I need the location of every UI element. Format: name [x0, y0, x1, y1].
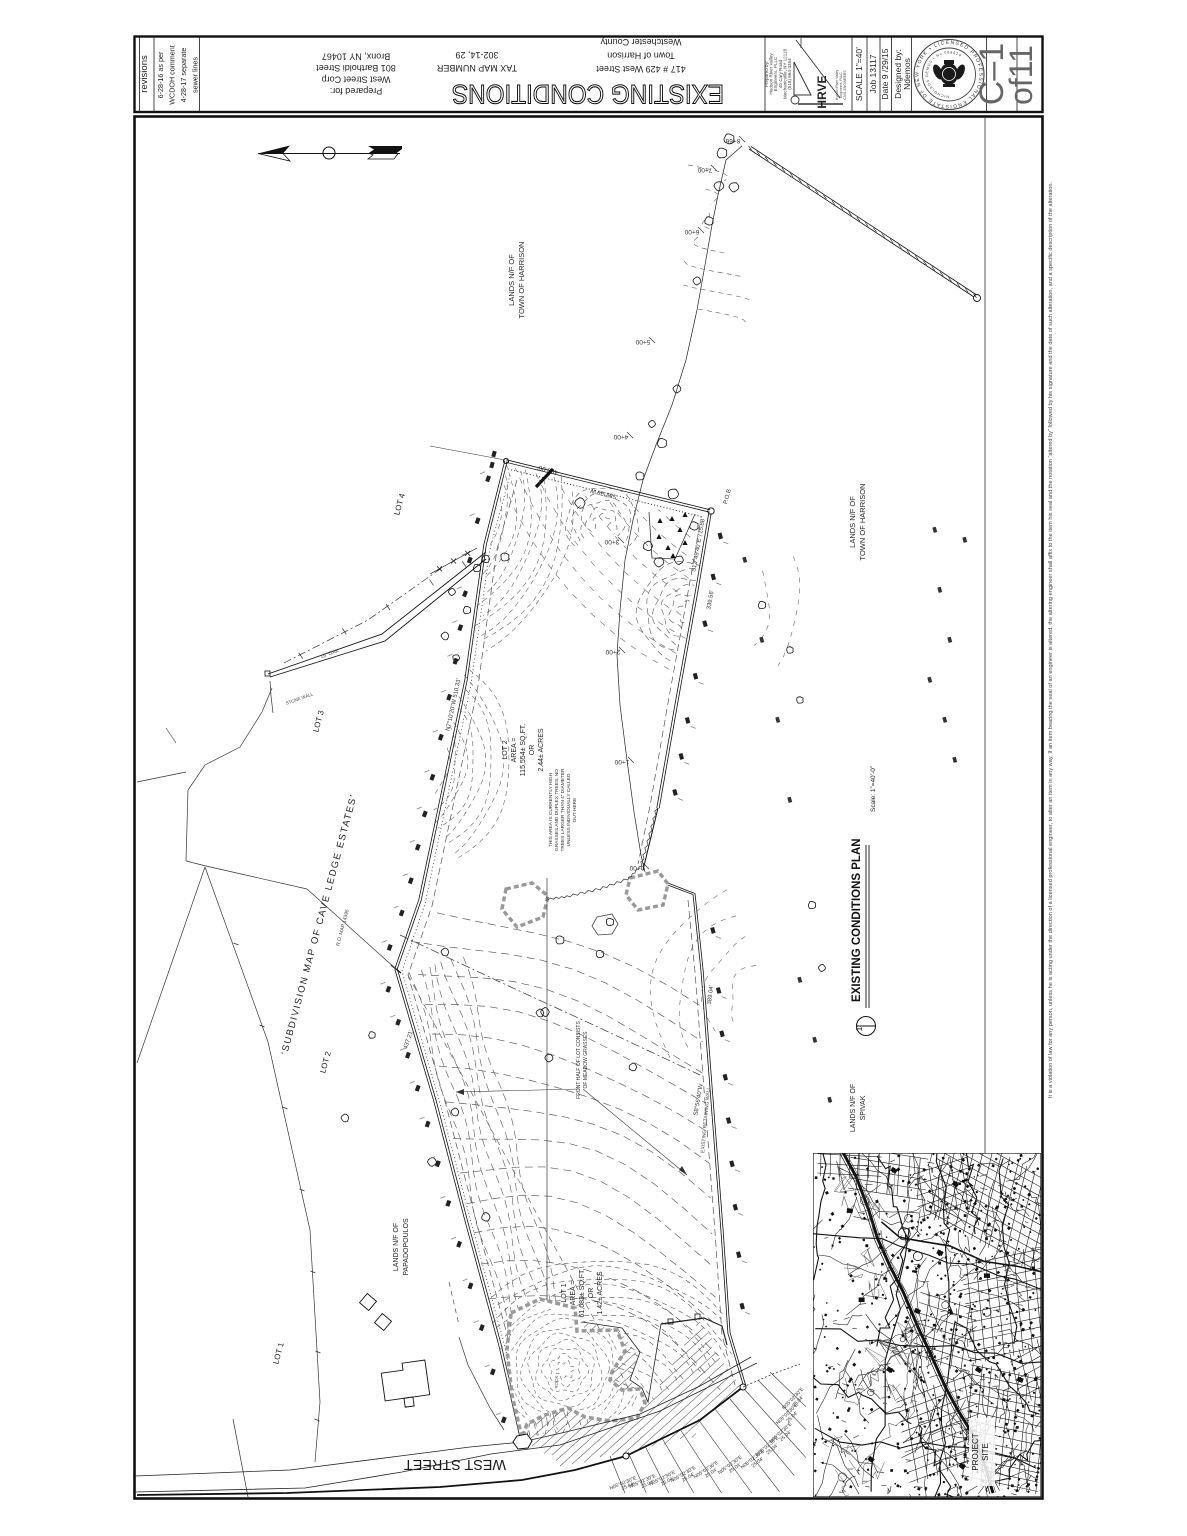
svg-text:ROCK: ROCK	[554, 1375, 559, 1388]
svg-text:SITE: SITE	[981, 1443, 990, 1461]
svg-text:1: 1	[855, 1026, 864, 1031]
svg-text:LANDS N/F OF: LANDS N/F OF	[850, 1084, 857, 1132]
svg-text:LOT 2: LOT 2	[502, 740, 509, 759]
svg-text:61,683± SQ.FT.: 61,683± SQ.FT.	[579, 1268, 586, 1317]
svg-text:1+00: 1+00	[614, 758, 629, 765]
svg-text:1.42± ACRES: 1.42± ACRES	[597, 1271, 604, 1314]
svg-text:AREA =: AREA =	[570, 1281, 577, 1306]
svg-text:OUT HERE: OUT HERE	[572, 798, 578, 823]
svg-text:LOT 1: LOT 1	[561, 1283, 568, 1302]
svg-text:OR: OR	[529, 745, 536, 756]
svg-text:(518) 664-3354: (518) 664-3354	[787, 58, 792, 90]
svg-text:Date 9 /29/15: Date 9 /29/15	[880, 48, 890, 99]
svg-text:SPIVAK: SPIVAK	[860, 1095, 867, 1120]
svg-text:WEST STREET: WEST STREET	[404, 1456, 506, 1473]
svg-text:LANDS N/F OF: LANDS N/F OF	[848, 496, 857, 548]
svg-text:UNLESS INDIVIDUALLY CALLED: UNLESS INDIVIDUALLY CALLED	[566, 773, 572, 846]
svg-text:2.44± ACRES: 2.44± ACRES	[538, 728, 545, 771]
svg-text:OF MEADOW GRASSES: OF MEADOW GRASSES	[583, 1031, 589, 1089]
svg-text:AREA =: AREA =	[511, 738, 518, 763]
svg-text:of11: of11	[1003, 45, 1039, 105]
svg-text:GRASSES AND DUPLEX TREES. NO: GRASSES AND DUPLEX TREES. NO	[554, 769, 560, 851]
svg-text:EXISTING CONDITIONS PLAN: EXISTING CONDITIONS PLAN	[851, 838, 863, 1002]
svg-text:2+00: 2+00	[605, 648, 620, 655]
svg-text:TOWN OF HARRISON: TOWN OF HARRISON	[858, 484, 867, 561]
svg-text:SCALE 1”=40’: SCALE 1”=40’	[854, 47, 864, 101]
svg-text:417 # 429 West Street: 417 # 429 West Street	[596, 64, 686, 74]
svg-text:It is a violation of law for a: It is a violation of law for any person,…	[1048, 181, 1054, 1098]
svg-text:sewer lines: sewer lines	[191, 57, 200, 93]
svg-text:TREES LARGER THAN 4” DIAMETER: TREES LARGER THAN 4” DIAMETER	[560, 768, 566, 852]
svg-text:Job 13117: Job 13117	[868, 54, 878, 93]
svg-text:Scale: 1”=40’-0”: Scale: 1”=40’-0”	[870, 766, 877, 812]
svg-text:CIVIL ENGINEERS: CIVIL ENGINEERS	[843, 70, 847, 100]
svg-text:6+00: 6+00	[684, 228, 699, 235]
svg-text:EXISTING CONDITIONS: EXISTING CONDITIONS	[452, 79, 724, 109]
svg-text:West Street Corp: West Street Corp	[322, 75, 391, 85]
svg-text:4+00: 4+00	[613, 433, 628, 440]
svg-text:OR: OR	[588, 1288, 595, 1299]
svg-text:PAPADOPOULOS: PAPADOPOULOS	[403, 1218, 410, 1276]
svg-text:FRONT HALF OF LOT CONSISTS: FRONT HALF OF LOT CONSISTS	[576, 1021, 582, 1099]
svg-text:115,554± SQ.FT.: 115,554± SQ.FT.	[520, 724, 527, 776]
svg-text:LANDS N/F OF: LANDS N/F OF	[393, 1223, 400, 1271]
svg-text:5+00: 5+00	[635, 338, 650, 345]
svg-text:Ndemos: Ndemos	[902, 58, 912, 90]
svg-text:TAX MAP NUMBER: TAX MAP NUMBER	[436, 63, 517, 73]
svg-text:4-28-17 separate: 4-28-17 separate	[179, 48, 188, 103]
svg-text:6-28-16 as per: 6-28-16 as per	[156, 51, 165, 98]
svg-text:WCDOH comment: WCDOH comment	[168, 45, 177, 105]
svg-text:801 Bartholdi Street: 801 Bartholdi Street	[316, 63, 396, 73]
svg-text:HRVE: HRVE	[815, 75, 829, 108]
svg-text:Bronx, NY 10467: Bronx, NY 10467	[322, 52, 390, 62]
svg-text:revisions: revisions	[139, 55, 150, 93]
svg-text:Town of Harrison: Town of Harrison	[607, 51, 675, 61]
svg-text:TOWN OF HARRISON: TOWN OF HARRISON	[517, 242, 526, 319]
svg-text:302-14, 29: 302-14, 29	[455, 50, 498, 60]
svg-text:PROJECT: PROJECT	[971, 1433, 980, 1470]
svg-text:Westchester County: Westchester County	[600, 37, 681, 47]
svg-text:LANDS N/F OF: LANDS N/F OF	[507, 254, 516, 306]
svg-text:THIS AREA IS CURRENTLY HIGH: THIS AREA IS CURRENTLY HIGH	[548, 772, 554, 847]
svg-text:Prepared for:: Prepared for:	[330, 86, 383, 96]
